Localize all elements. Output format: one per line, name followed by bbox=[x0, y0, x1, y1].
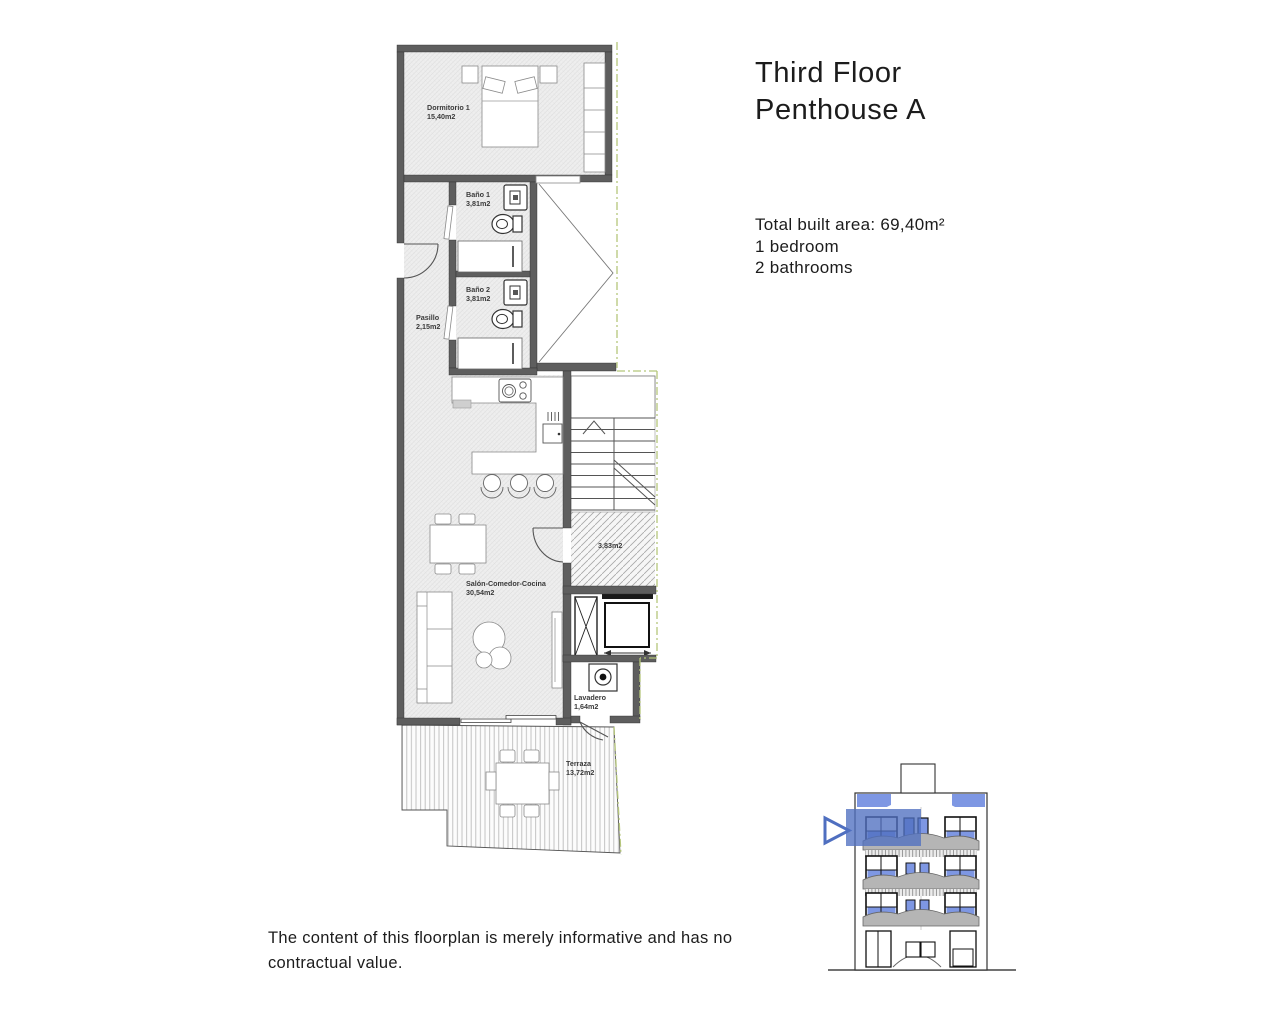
room-area: 3,81m2 bbox=[466, 199, 490, 208]
landing-floor bbox=[571, 510, 655, 590]
roof-void bbox=[537, 182, 617, 363]
chair bbox=[459, 564, 475, 574]
building-elevation bbox=[815, 755, 1020, 977]
room-area: 3,83m2 bbox=[598, 541, 622, 550]
sofa bbox=[417, 592, 452, 703]
built-area: Total built area: 69,40m² bbox=[755, 214, 945, 236]
bedroom-count: 1 bedroom bbox=[755, 236, 945, 258]
room-label: Lavadero bbox=[574, 693, 607, 702]
kitchen-sink bbox=[453, 400, 471, 408]
chair bbox=[500, 805, 515, 817]
room-label: Baño 1 bbox=[466, 190, 490, 199]
room-label: Pasillo bbox=[416, 313, 440, 322]
coffee-table bbox=[489, 647, 511, 669]
title-line-1: Third Floor bbox=[755, 55, 926, 92]
toilet-icon bbox=[492, 215, 514, 234]
room-label: Terraza bbox=[566, 759, 592, 768]
nightstand bbox=[462, 66, 478, 83]
chair bbox=[435, 514, 451, 524]
floor-marker-arrow-icon bbox=[825, 818, 849, 843]
summary: Total built area: 69,40m² 1 bedroom 2 ba… bbox=[755, 214, 945, 279]
stair-landing bbox=[571, 376, 655, 418]
room-label: Baño 2 bbox=[466, 285, 490, 294]
room-area: 1,64m2 bbox=[574, 702, 598, 711]
room-area: 15,40m2 bbox=[427, 112, 455, 121]
room-area: 13,72m2 bbox=[566, 768, 594, 777]
floorplan: Dormitorio 1 15,40m2 Baño 1 3,81m2 Baño … bbox=[390, 35, 690, 865]
page-title: Third Floor Penthouse A bbox=[755, 55, 926, 129]
chair bbox=[500, 750, 515, 762]
room-area: 30,54m2 bbox=[466, 588, 494, 597]
balcony-band bbox=[863, 873, 979, 890]
dining-table bbox=[430, 525, 486, 563]
balcony-band bbox=[863, 910, 979, 927]
nightstand bbox=[540, 66, 557, 83]
wardrobe bbox=[584, 63, 605, 172]
floor-highlight bbox=[846, 809, 921, 846]
chair bbox=[524, 805, 539, 817]
roof-structure bbox=[901, 764, 935, 793]
disclaimer: The content of this floorplan is merely … bbox=[268, 926, 773, 976]
bathroom-count: 2 bathrooms bbox=[755, 257, 945, 279]
toilet-icon bbox=[492, 310, 514, 329]
chair bbox=[435, 564, 451, 574]
elevator-car bbox=[605, 603, 649, 647]
room-label: Salón-Comedor-Cocina bbox=[466, 579, 547, 588]
terrace-table bbox=[496, 763, 549, 804]
cooktop-icon bbox=[499, 379, 531, 402]
hallway-floor bbox=[404, 182, 449, 375]
room-area: 2,15m2 bbox=[416, 322, 440, 331]
stairs bbox=[571, 376, 655, 512]
room-label: Dormitorio 1 bbox=[427, 103, 470, 112]
page: Dormitorio 1 15,40m2 Baño 1 3,81m2 Baño … bbox=[0, 0, 1280, 1024]
elevator-block bbox=[571, 592, 656, 656]
chair bbox=[524, 750, 539, 762]
shelf bbox=[536, 176, 580, 183]
room-area: 3,81m2 bbox=[466, 294, 490, 303]
chair bbox=[459, 514, 475, 524]
title-line-2: Penthouse A bbox=[755, 92, 926, 129]
tv-unit bbox=[552, 612, 562, 688]
coffee-table bbox=[476, 652, 492, 668]
